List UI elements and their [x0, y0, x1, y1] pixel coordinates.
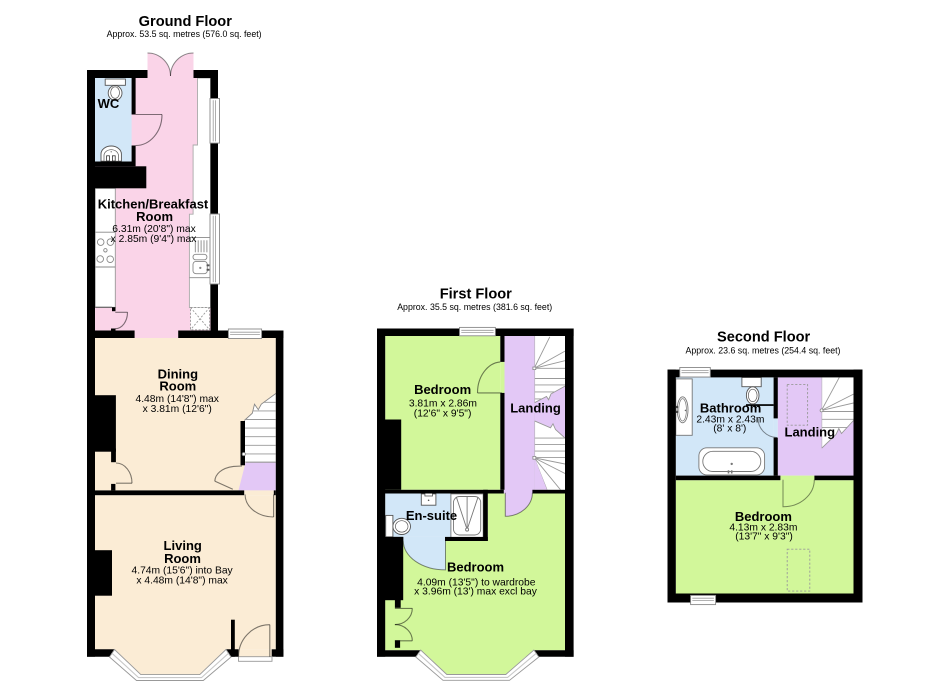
- svg-text:Second Floor: Second Floor: [717, 330, 811, 346]
- svg-text:x 3.81m (12'6"): x 3.81m (12'6"): [143, 404, 212, 415]
- svg-text:Approx. 53.5 sq. metres (576.0: Approx. 53.5 sq. metres (576.0 sq. feet): [107, 29, 262, 39]
- svg-text:(12'6" x 9'5"): (12'6" x 9'5"): [414, 409, 472, 420]
- svg-text:Landing: Landing: [785, 425, 836, 440]
- svg-text:Ground Floor: Ground Floor: [139, 14, 233, 30]
- svg-text:Bedroom: Bedroom: [447, 560, 504, 575]
- svg-text:Room: Room: [159, 379, 196, 394]
- svg-text:Approx. 35.5 sq. metres (381.6: Approx. 35.5 sq. metres (381.6 sq. feet): [397, 302, 552, 312]
- svg-text:WC: WC: [98, 96, 120, 111]
- svg-text:Bedroom: Bedroom: [414, 382, 471, 397]
- svg-text:(13'7" x 9'3"): (13'7" x 9'3"): [735, 532, 793, 543]
- svg-text:En-suite: En-suite: [406, 508, 457, 523]
- svg-text:x 4.48m (14'8") max: x 4.48m (14'8") max: [136, 575, 228, 586]
- svg-text:x 2.85m (9'4") max: x 2.85m (9'4") max: [111, 234, 198, 245]
- svg-text:Approx. 23.6 sq. metres (254.4: Approx. 23.6 sq. metres (254.4 sq. feet): [685, 345, 840, 355]
- svg-text:x 3.96m (13') max excl bay: x 3.96m (13') max excl bay: [414, 587, 538, 598]
- svg-text:Landing: Landing: [510, 400, 561, 415]
- svg-text:(8' x 8'): (8' x 8'): [713, 424, 746, 435]
- svg-text:First Floor: First Floor: [440, 287, 512, 303]
- svg-text:Room: Room: [136, 209, 173, 224]
- svg-text:Room: Room: [164, 551, 201, 566]
